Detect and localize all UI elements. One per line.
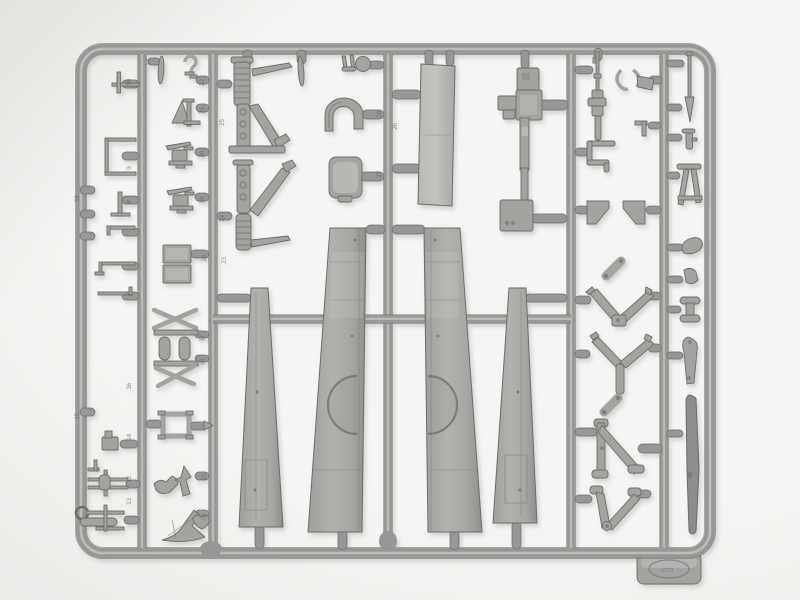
sprue-illustration: icm — [0, 0, 800, 600]
svg-text:26: 26 — [391, 123, 399, 130]
part-machine-gun — [588, 52, 606, 140]
svg-text:16: 16 — [125, 383, 133, 390]
svg-text:9: 9 — [125, 166, 133, 170]
part-radiator-pylon — [498, 68, 542, 231]
part-small-box-knob — [102, 431, 118, 450]
part-square-frame — [158, 411, 213, 439]
svg-text:55: 55 — [73, 195, 81, 202]
part-fork-dome — [342, 55, 371, 72]
svg-text:21: 21 — [198, 107, 206, 114]
svg-text:10: 10 — [125, 79, 133, 86]
part-v-strut-2 — [590, 332, 654, 394]
part-x-frame — [154, 310, 198, 386]
part-angle-bracket — [635, 121, 647, 136]
part-trestle-stand — [677, 164, 702, 205]
svg-text:28: 28 — [375, 111, 383, 118]
part-a-frame-2 — [590, 486, 641, 531]
svg-text:14: 14 — [125, 434, 133, 441]
part-large-panel — [418, 64, 455, 206]
part-teardrop-paddle — [682, 238, 702, 254]
part-needle-rod — [685, 52, 694, 122]
part-sprung-strut-a — [229, 57, 292, 153]
svg-text:20: 20 — [198, 151, 206, 158]
part-kite-bracket — [175, 466, 191, 496]
part-valve — [682, 129, 697, 149]
part-twin-boxes — [163, 245, 191, 283]
part-hook-lever — [185, 56, 197, 78]
svg-text:8: 8 — [125, 200, 133, 204]
runner-2 — [208, 54, 218, 548]
part-link-oval — [604, 259, 623, 278]
part-cowl-horseshoe — [325, 98, 363, 131]
svg-text:24: 24 — [218, 215, 226, 222]
sprue-photo: icm — [0, 0, 800, 600]
part-bucket-seat — [329, 157, 362, 202]
svg-text:18: 18 — [198, 359, 206, 366]
part-v-strut-1 — [586, 287, 654, 326]
part-sprung-strut-b — [233, 160, 296, 250]
part-cone-bracket — [172, 99, 200, 126]
svg-text:22: 22 — [198, 79, 206, 86]
part-cross-rods — [88, 470, 128, 496]
svg-text:7: 7 — [124, 292, 132, 296]
part-elbow — [154, 476, 178, 494]
runner-1 — [137, 54, 147, 548]
svg-text:19: 19 — [198, 197, 206, 204]
part-link-oval-2 — [602, 396, 620, 414]
part-l-pin — [88, 460, 99, 471]
part-c-bracket — [587, 141, 615, 172]
runner-4 — [566, 54, 576, 548]
svg-text:17: 17 — [198, 335, 206, 342]
part-a-frame-1 — [592, 419, 644, 478]
runner-junction-blob — [379, 531, 397, 551]
svg-text:14: 14 — [144, 59, 152, 66]
part-long-blade — [686, 395, 699, 534]
brand-logo-text: icm — [661, 566, 674, 574]
svg-text:15: 15 — [200, 474, 208, 481]
part-wing-upper-left — [308, 228, 366, 532]
part-claw-pincer — [617, 70, 654, 90]
part-small-boot — [684, 268, 698, 283]
part-bellcrank — [683, 337, 698, 384]
part-mount-bracket-2 — [167, 187, 194, 213]
svg-text:15: 15 — [73, 413, 81, 420]
svg-text:23: 23 — [220, 257, 228, 264]
runner-junction-blob — [200, 541, 222, 557]
part-pulley-spool — [680, 297, 700, 322]
part-mount-bracket — [166, 142, 193, 168]
svg-text:13: 13 — [125, 498, 133, 505]
part-wedge-left — [587, 201, 609, 224]
svg-text:27: 27 — [375, 171, 383, 178]
svg-text:16: 16 — [200, 514, 208, 521]
part-wing-upper-right — [424, 228, 482, 532]
part-wedge-right — [623, 201, 645, 224]
svg-text:12: 12 — [125, 476, 133, 483]
svg-text:18: 18 — [200, 255, 208, 262]
svg-text:25: 25 — [218, 119, 226, 126]
